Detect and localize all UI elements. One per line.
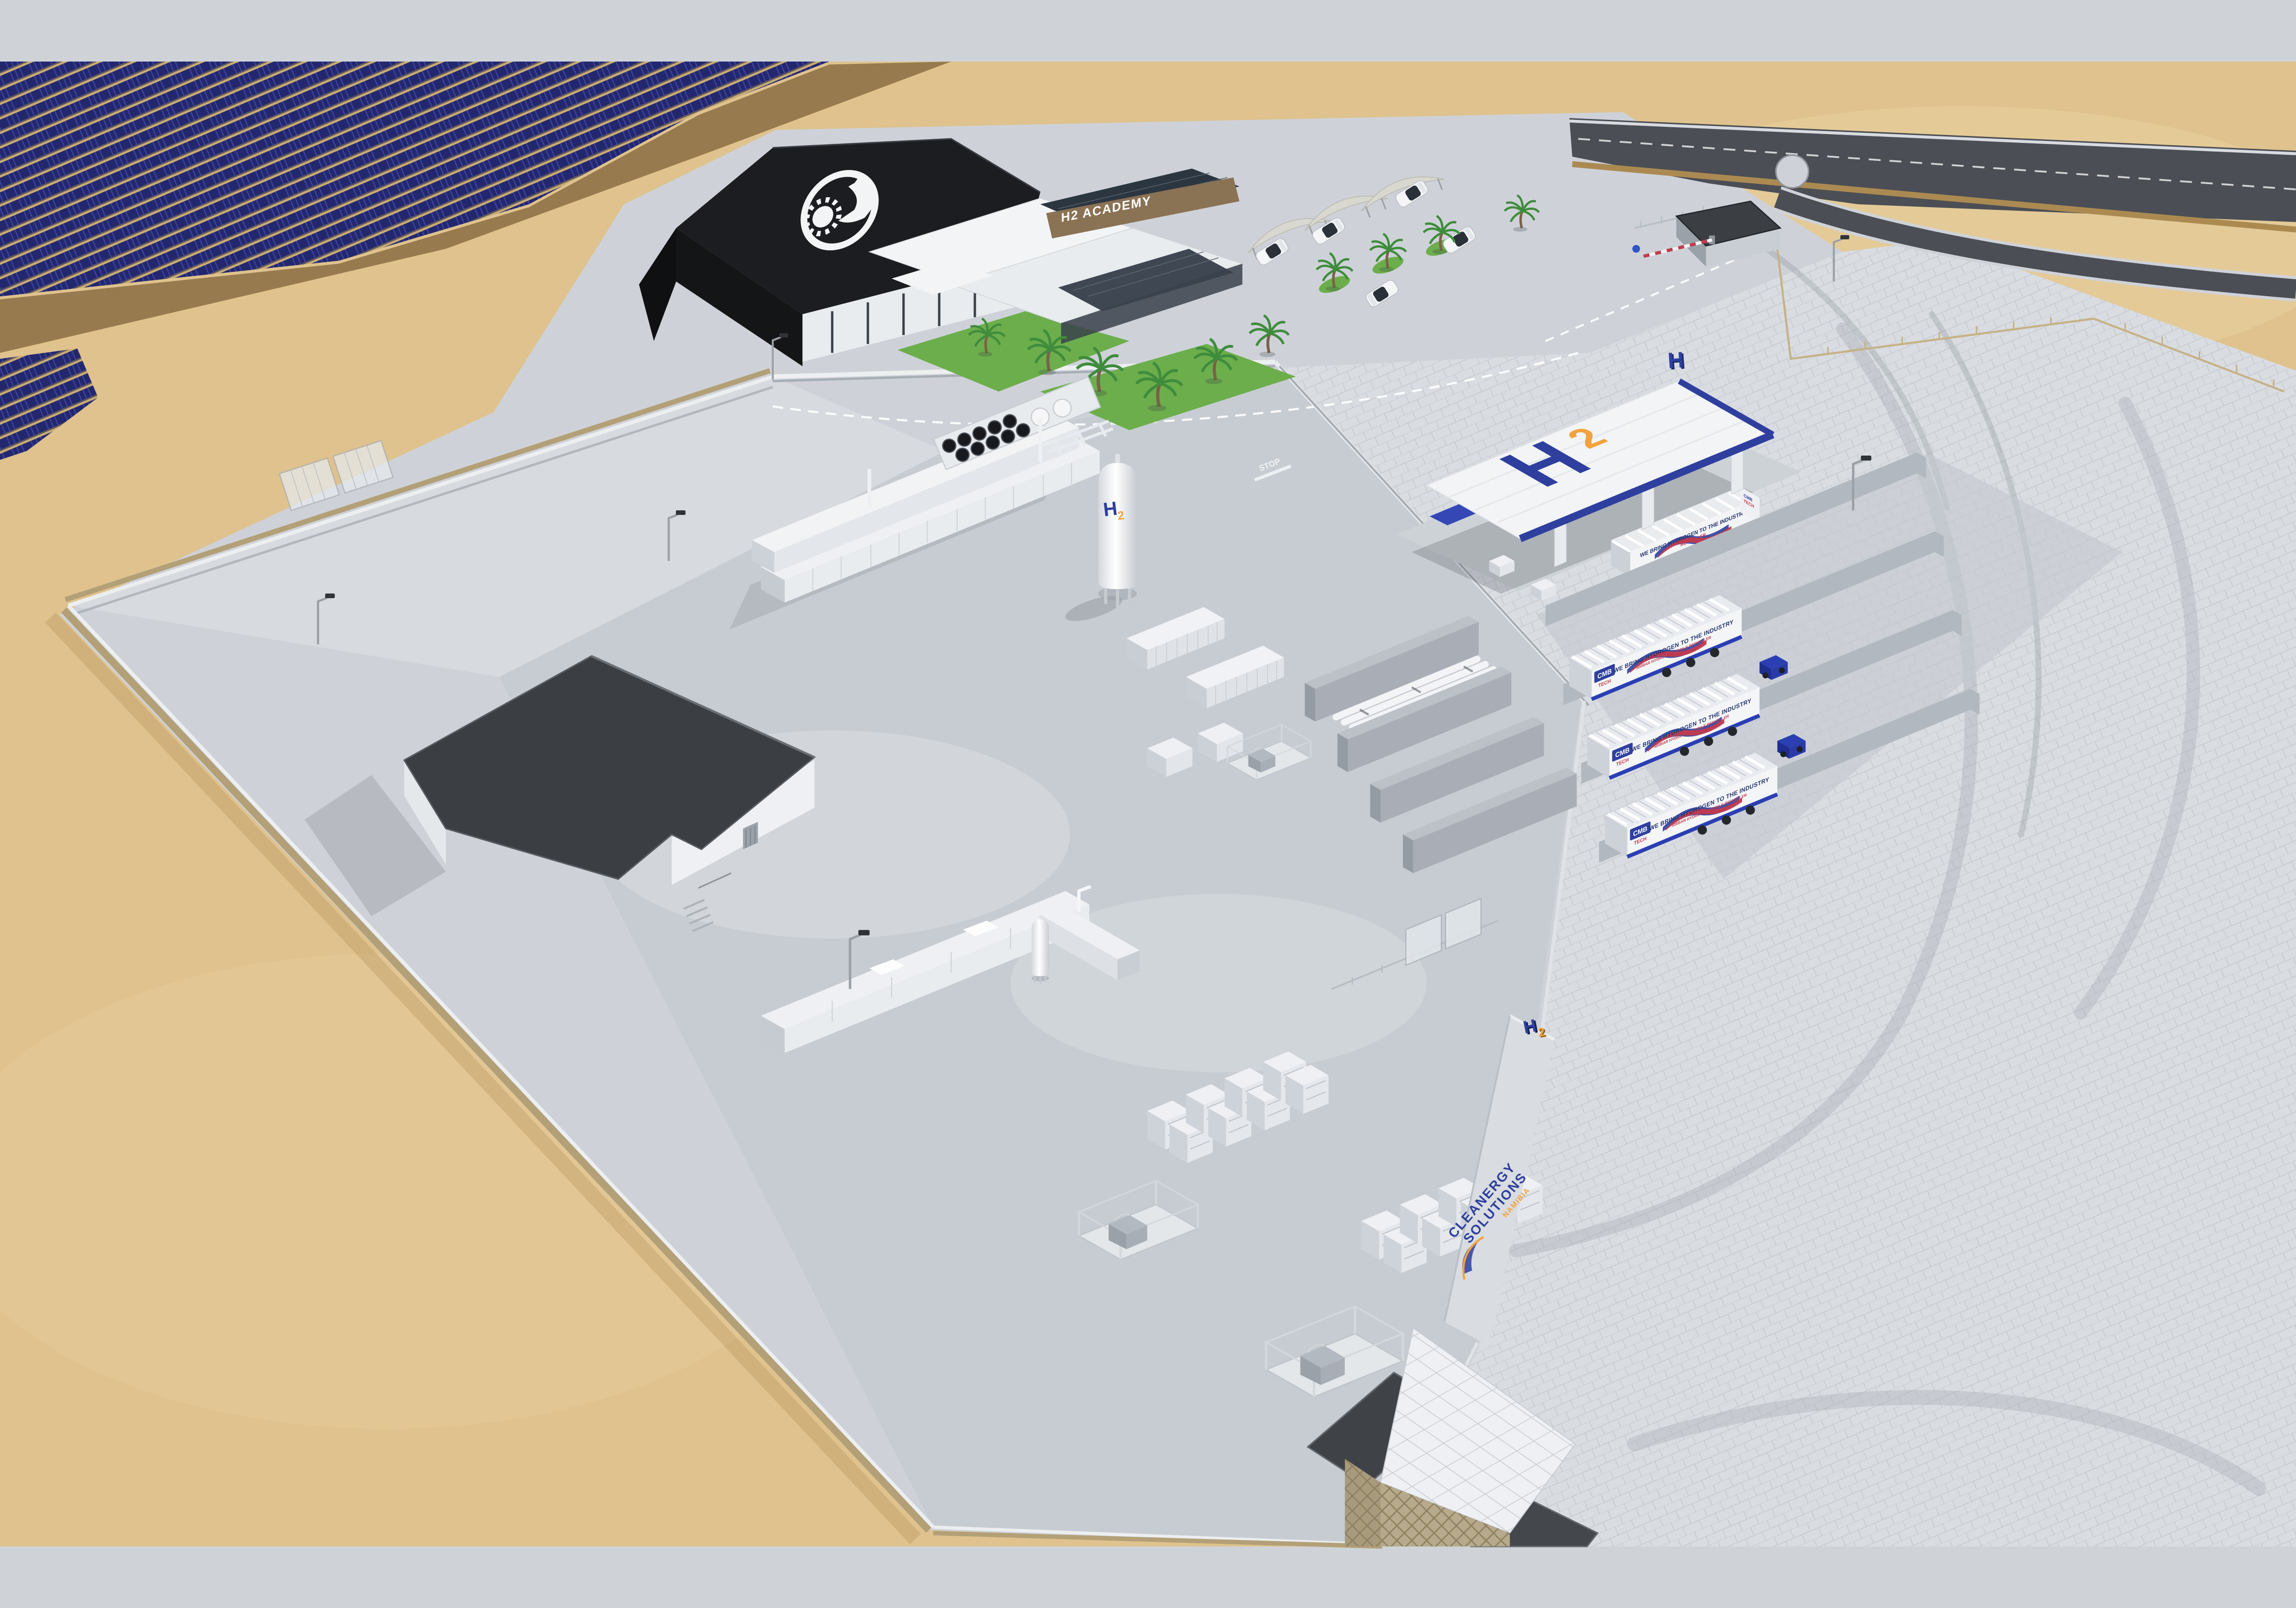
water-barrel — [1632, 245, 1640, 253]
svg-text:H: H — [1102, 497, 1119, 520]
aerial-render: CMB TECH WE BRING HYDROGEN TO THE INDUST… — [0, 0, 2296, 1608]
roundabout-island — [1776, 155, 1808, 188]
canopy-roof-sign: H H — [1667, 347, 1686, 375]
water-tank — [1031, 915, 1049, 984]
svg-text:H: H — [1667, 348, 1685, 373]
